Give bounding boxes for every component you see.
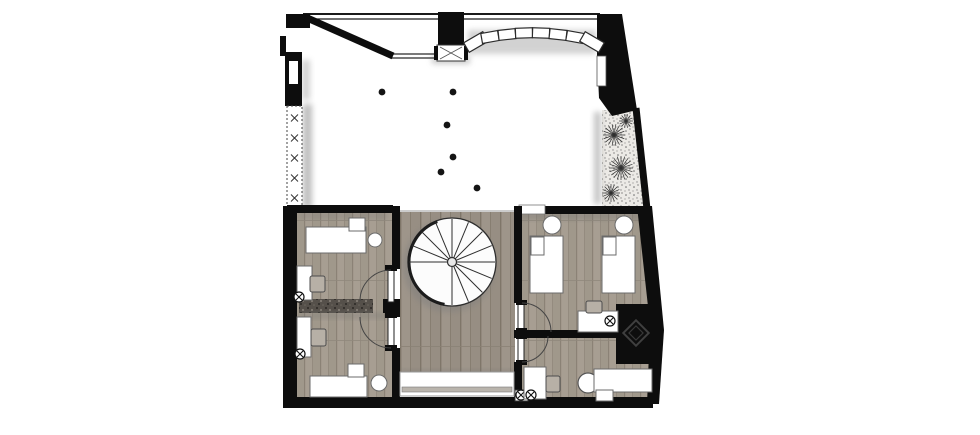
window-gap: [289, 61, 298, 84]
bench-seat: [515, 28, 532, 39]
wall-shadow: [300, 313, 388, 318]
ceiling-dot: [438, 169, 445, 176]
door-leaf: [388, 315, 394, 348]
ceiling-dot: [379, 89, 386, 96]
corridor-wall-left: [392, 206, 400, 269]
chair: [311, 329, 326, 346]
threshold-step: [402, 387, 512, 392]
ladder-strip: [287, 106, 302, 206]
window-gap: [597, 56, 606, 86]
floor-plan-canvas: [0, 0, 980, 435]
chair: [546, 376, 560, 392]
corridor-wall-right: [514, 206, 522, 303]
wall-shadow: [302, 60, 310, 100]
left-wall: [283, 206, 297, 408]
bench-seat: [532, 28, 549, 39]
pillow: [349, 218, 365, 231]
spiral-center-post: [448, 258, 457, 267]
bench-seat: [481, 31, 499, 44]
door-leaf: [518, 303, 524, 331]
threshold: [400, 372, 514, 396]
door-leaf: [518, 337, 524, 363]
door-hinge: [516, 300, 527, 305]
ceiling-dot: [450, 89, 457, 96]
ceiling-dot: [474, 185, 481, 192]
side-table: [543, 216, 561, 234]
side-table: [368, 233, 382, 247]
pillow: [596, 390, 613, 401]
wall-shadow: [300, 213, 388, 218]
bench-seat: [498, 29, 516, 41]
side-table: [615, 216, 633, 234]
bed: [310, 376, 367, 397]
pillow: [603, 237, 616, 255]
pillow: [348, 364, 364, 377]
ceiling-dot: [450, 154, 457, 161]
stool-side: [434, 46, 438, 60]
closet-strip: [299, 299, 373, 313]
door-hinge: [516, 360, 527, 365]
ceiling-dot: [444, 122, 451, 129]
door-hinge: [516, 328, 527, 333]
floor-plan: [0, 0, 980, 435]
door-leaf: [388, 269, 394, 302]
chair: [310, 276, 325, 292]
door-hinge: [385, 312, 397, 318]
pillow: [531, 237, 544, 255]
bench-seat: [549, 29, 567, 41]
bed: [594, 369, 652, 392]
wall-shadow: [303, 104, 312, 208]
door-hinge: [516, 334, 527, 339]
corridor-wall-left: [392, 348, 400, 406]
side-table: [371, 375, 387, 391]
glazed-door: [519, 205, 545, 214]
wall-shadow: [594, 112, 601, 204]
chair: [586, 301, 602, 313]
wall-bedroom1-top: [287, 205, 393, 213]
